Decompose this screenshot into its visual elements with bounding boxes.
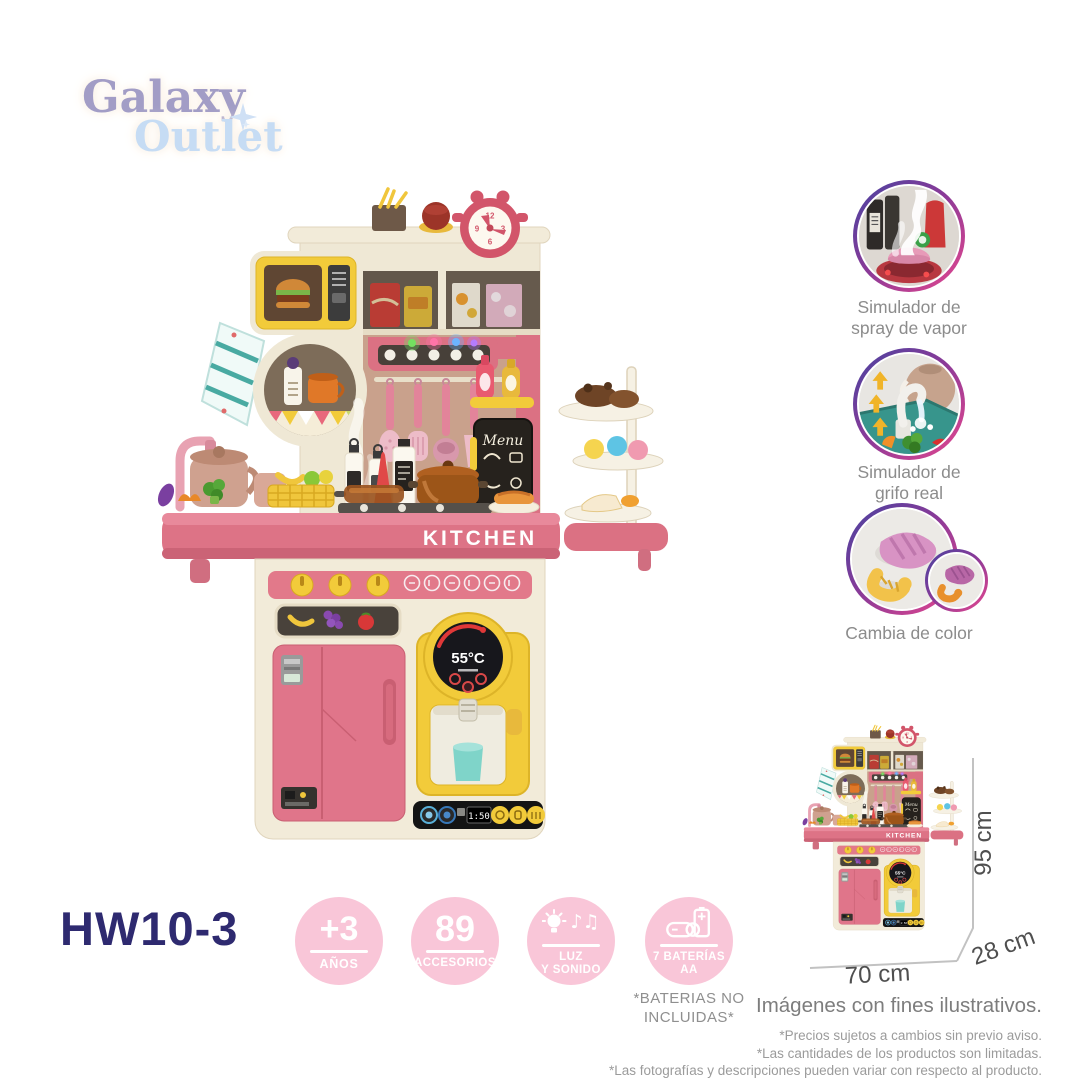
caption-line: grifo real [824, 483, 994, 504]
badge-accessories-value: 89 [435, 912, 475, 946]
badge-batteries: 7 BATERÍAS AA [645, 897, 733, 985]
badge-light-sound-label2: Y SONIDO [541, 964, 601, 977]
dimension-depth: 28 cm [968, 923, 1039, 971]
disclaimer-note-3: *Las fotografías y descripciones pueden … [572, 1062, 1042, 1080]
badge-age: +3 AÑOS [295, 897, 383, 985]
caption-line: Simulador de [824, 297, 994, 318]
brand-logo: Galaxy Outlet [82, 76, 322, 186]
battery-icons [665, 906, 713, 940]
feature-caption-faucet: Simulador de grifo real [824, 462, 994, 504]
battery-icon [665, 906, 713, 940]
caption-line: Simulador de [824, 462, 994, 483]
dimension-height: 95 cm [970, 810, 997, 875]
steam-feature-illustration [859, 186, 959, 286]
badge-accessories-label: ACCESORIOS [414, 957, 496, 970]
light-music-icons: ♪♫ [542, 906, 599, 940]
kitchen-playset-image [150, 185, 670, 845]
feature-circle-faucet [853, 348, 965, 460]
feature-caption-steam: Simulador de spray de vapor [824, 297, 994, 339]
badge-batteries-label2: AA [680, 964, 698, 977]
disclaimer-title: Imágenes con fines ilustrativos. [572, 994, 1042, 1018]
disclaimer-note-1: *Precios sujetos a cambios sin previo av… [572, 1027, 1042, 1045]
disclaimer-note-2: *Las cantidades de los productos son lim… [572, 1045, 1042, 1063]
feature-circle-color-change-small [925, 549, 988, 612]
badge-divider [426, 950, 484, 953]
legal-disclaimer: Imágenes con fines ilustrativos. *Precio… [572, 994, 1042, 1080]
sparkle-icon [228, 102, 258, 132]
badge-age-value: +3 [320, 912, 359, 946]
caption-line: spray de vapor [824, 318, 994, 339]
badge-divider [542, 944, 600, 947]
light-bulb-icon [542, 909, 568, 937]
color-change-small-illustration [930, 554, 983, 607]
badge-light-sound: ♪♫ LUZ Y SONIDO [527, 897, 615, 985]
badge-batteries-label1: 7 BATERÍAS [653, 951, 725, 964]
faucet-feature-illustration [859, 354, 959, 454]
feature-circle-steam [853, 180, 965, 292]
dimension-width: 70 cm [844, 959, 911, 989]
badge-age-label: AÑOS [319, 957, 358, 971]
music-notes-icon: ♪♫ [570, 913, 599, 932]
badge-light-sound-label1: LUZ [559, 951, 583, 964]
badge-accessories: 89 ACCESORIOS [411, 897, 499, 985]
product-flyer: 12 3 6 9 [0, 0, 1080, 1080]
dimensions-diagram: 95 cm 70 cm 28 cm [790, 718, 1070, 998]
feature-caption-color-change: Cambia de color [824, 623, 994, 644]
badge-divider [310, 950, 368, 953]
caption-line: Cambia de color [824, 623, 994, 644]
badge-divider [660, 944, 718, 947]
product-code: HW10-3 [60, 901, 238, 956]
